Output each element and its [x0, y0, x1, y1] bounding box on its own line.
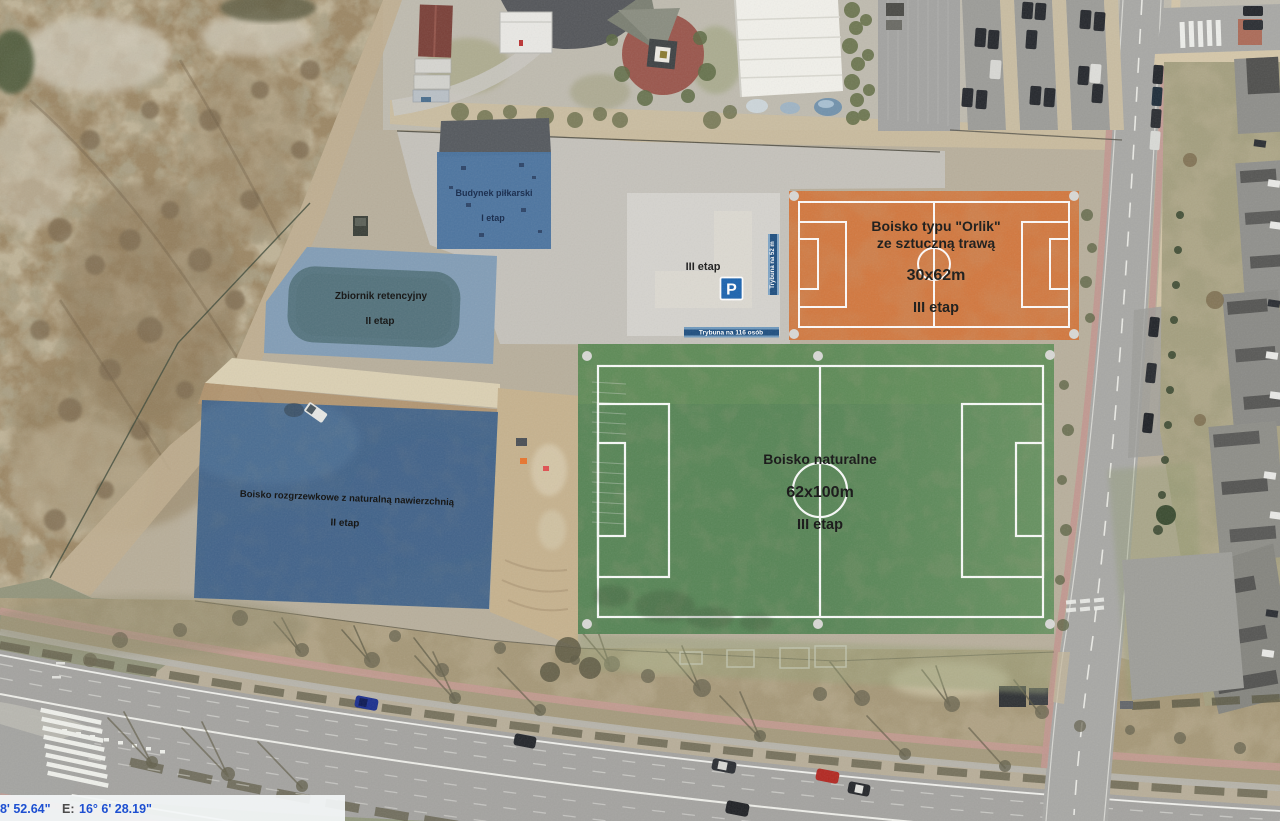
svg-text:E:: E: — [62, 802, 75, 816]
svg-text:58' 52.64": 58' 52.64" — [0, 802, 51, 816]
svg-text:16° 6' 28.19": 16° 6' 28.19" — [79, 802, 152, 816]
